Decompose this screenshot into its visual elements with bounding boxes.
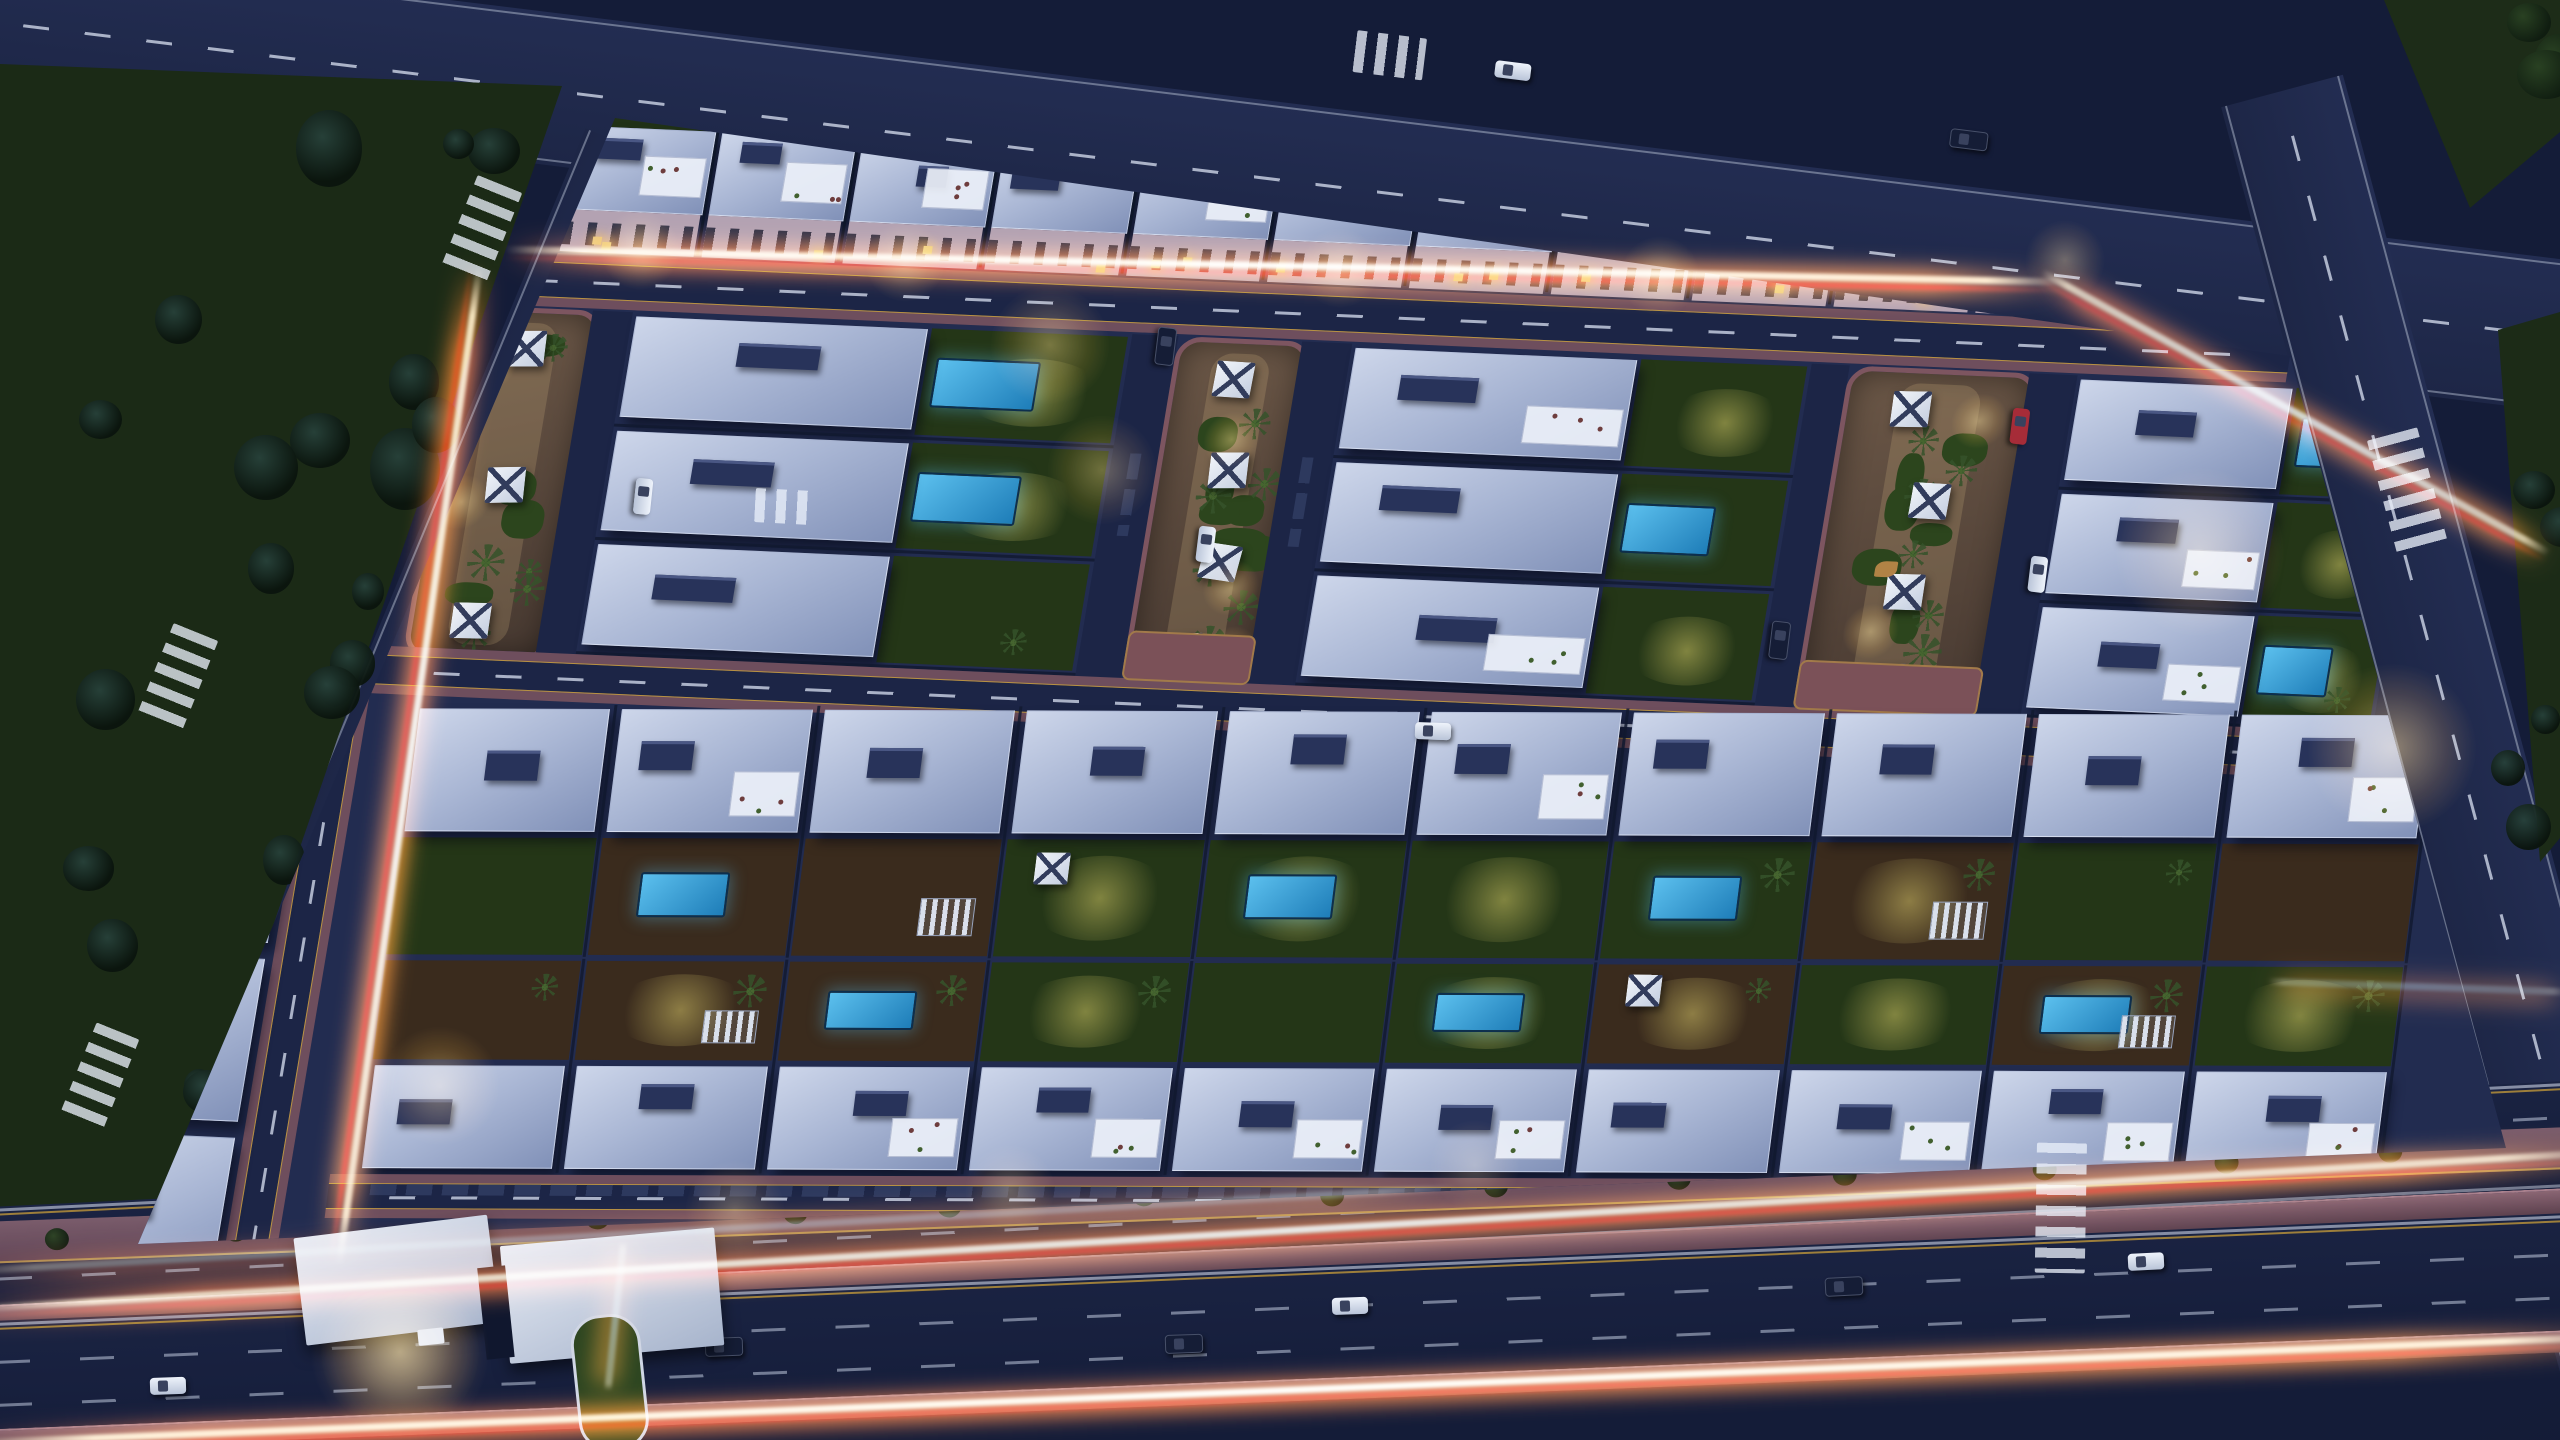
warm-glow (310, 1262, 490, 1440)
warm-glow (1047, 415, 1157, 525)
warm-glow (2115, 467, 2285, 637)
warm-glow (965, 1145, 1055, 1235)
warm-glow (990, 285, 1110, 405)
glow-lights-layer (0, 0, 2560, 1440)
aerial-night-render (0, 0, 2560, 1440)
warm-glow (1430, 1120, 1520, 1210)
warm-glow (380, 1026, 500, 1146)
warm-glow (865, 222, 945, 302)
warm-glow (2025, 220, 2105, 300)
warm-glow (1300, 228, 1380, 308)
warm-glow (2307, 663, 2477, 833)
gate-glow (320, 1272, 480, 1432)
warm-glow (685, 1160, 785, 1260)
warm-glow (1620, 236, 1700, 316)
warm-glow (600, 210, 680, 290)
